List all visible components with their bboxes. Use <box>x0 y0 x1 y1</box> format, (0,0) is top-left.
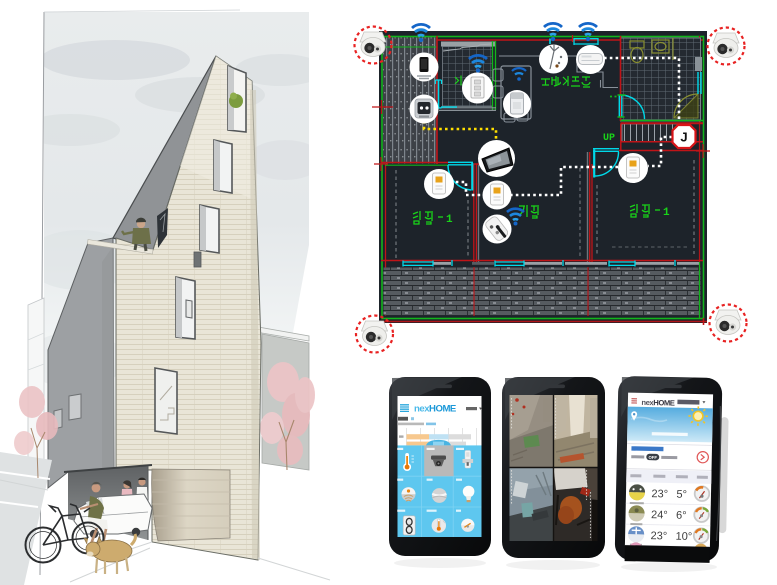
svg-text:UP: UP <box>603 133 615 144</box>
svg-text:6°: 6° <box>676 510 687 522</box>
svg-text:5°: 5° <box>676 489 687 501</box>
svg-text:10°: 10° <box>675 531 692 543</box>
svg-text:1: 1 <box>663 207 670 219</box>
svg-text:nexHOME: nexHOME <box>414 404 457 415</box>
svg-text:1: 1 <box>446 214 453 226</box>
svg-text:24°: 24° <box>651 509 668 521</box>
svg-text:OFF: OFF <box>649 455 658 460</box>
svg-text:nexHOME: nexHOME <box>641 398 675 408</box>
svg-text:23°: 23° <box>651 488 668 500</box>
svg-text:J: J <box>680 130 687 145</box>
svg-text:23°: 23° <box>650 530 667 542</box>
